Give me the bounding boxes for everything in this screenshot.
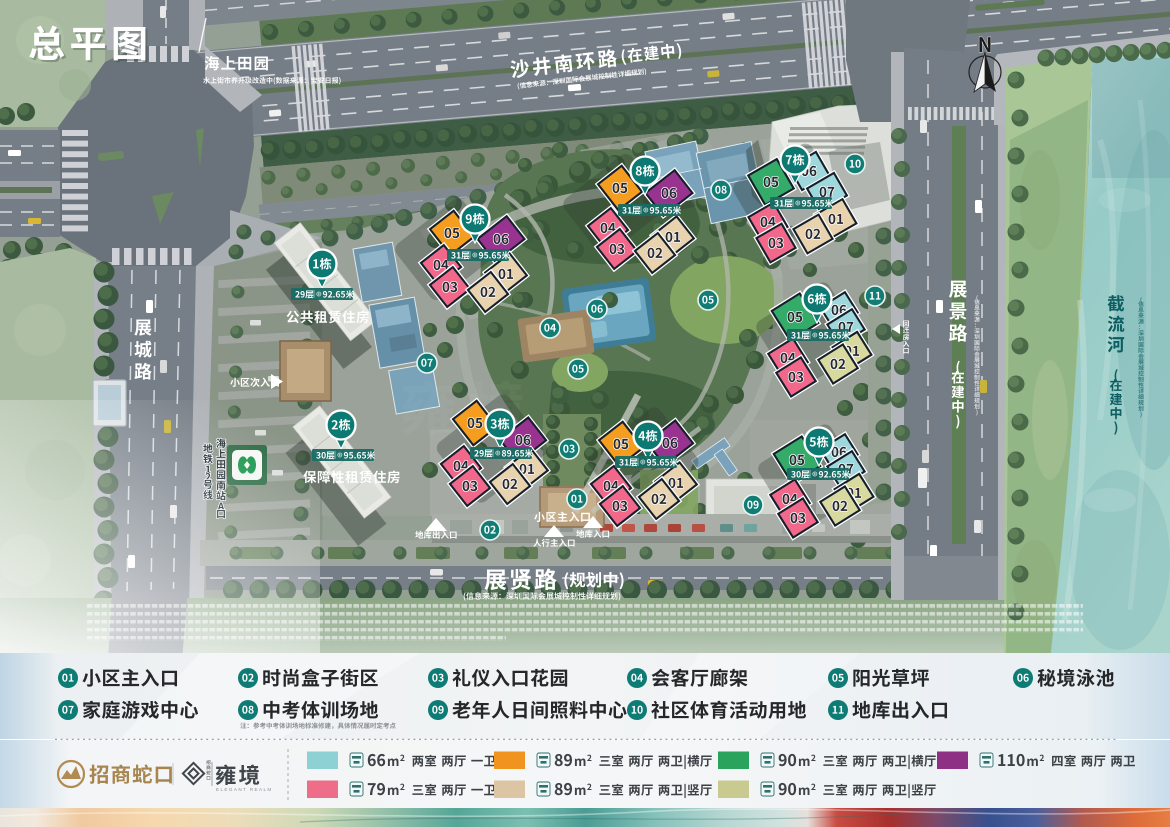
svg-text:ELEGANT REALM: ELEGANT REALM: [216, 787, 273, 792]
